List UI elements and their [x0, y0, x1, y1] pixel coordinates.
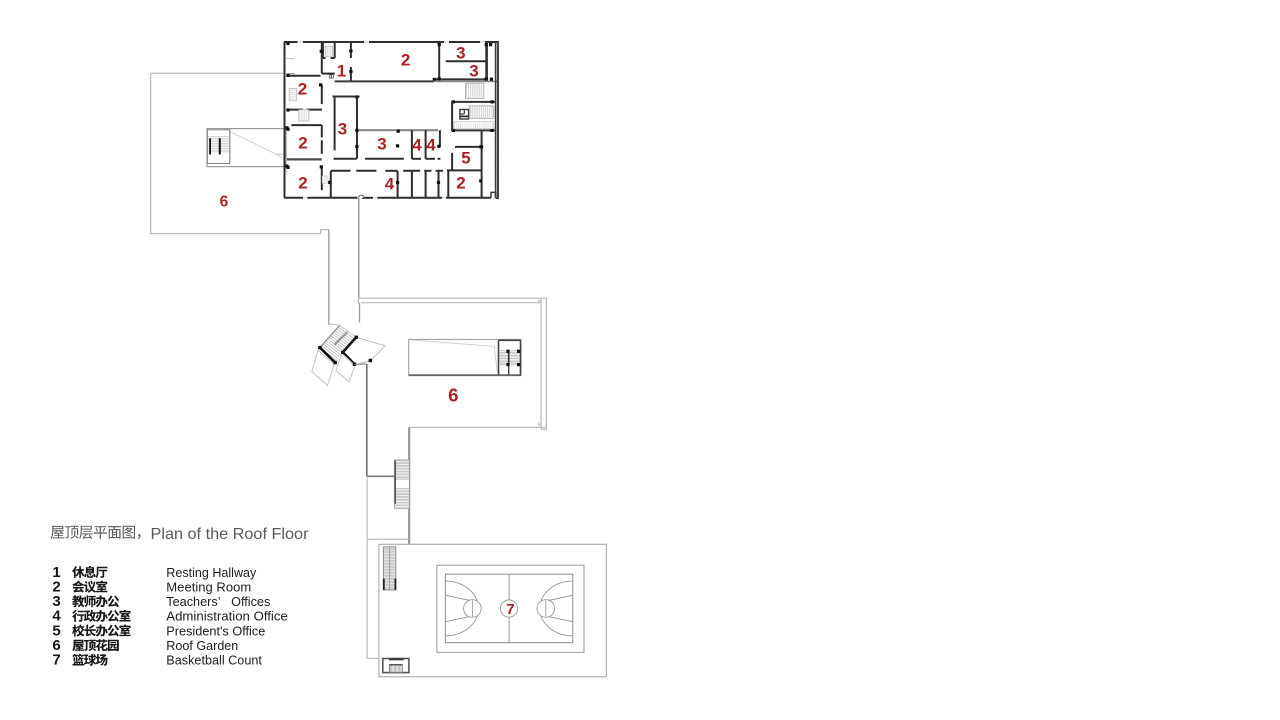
svg-text:Resting Hallway: Resting Hallway [166, 565, 256, 580]
svg-text:2: 2 [401, 51, 410, 70]
svg-text:President's Office: President's Office [166, 623, 265, 638]
svg-text:7: 7 [52, 652, 60, 669]
svg-text:4: 4 [412, 136, 422, 155]
svg-text:7: 7 [506, 601, 514, 618]
svg-text:Basketball Count: Basketball Count [166, 653, 262, 668]
svg-text:6: 6 [220, 194, 229, 211]
svg-text:3: 3 [469, 62, 478, 81]
svg-text:4: 4 [385, 175, 395, 194]
svg-text:Plan of the Roof Floor: Plan of the Roof Floor [151, 526, 310, 543]
svg-text:3: 3 [456, 44, 465, 63]
svg-text:1: 1 [337, 62, 346, 81]
svg-text:2: 2 [456, 174, 465, 193]
svg-text:4: 4 [426, 136, 436, 155]
svg-text:Roof Garden: Roof Garden [166, 638, 238, 653]
svg-text:5: 5 [461, 149, 470, 168]
svg-text:Teachers’ Offices: Teachers’ Offices [166, 594, 270, 609]
svg-text:Meeting Room: Meeting Room [166, 579, 251, 594]
svg-text:2: 2 [298, 80, 307, 99]
svg-text:Administration Office: Administration Office [166, 609, 287, 624]
svg-text:3: 3 [377, 135, 386, 154]
svg-text:3: 3 [338, 120, 347, 139]
svg-text:2: 2 [298, 174, 307, 193]
svg-text:6: 6 [448, 384, 458, 405]
svg-text:2: 2 [298, 134, 307, 153]
